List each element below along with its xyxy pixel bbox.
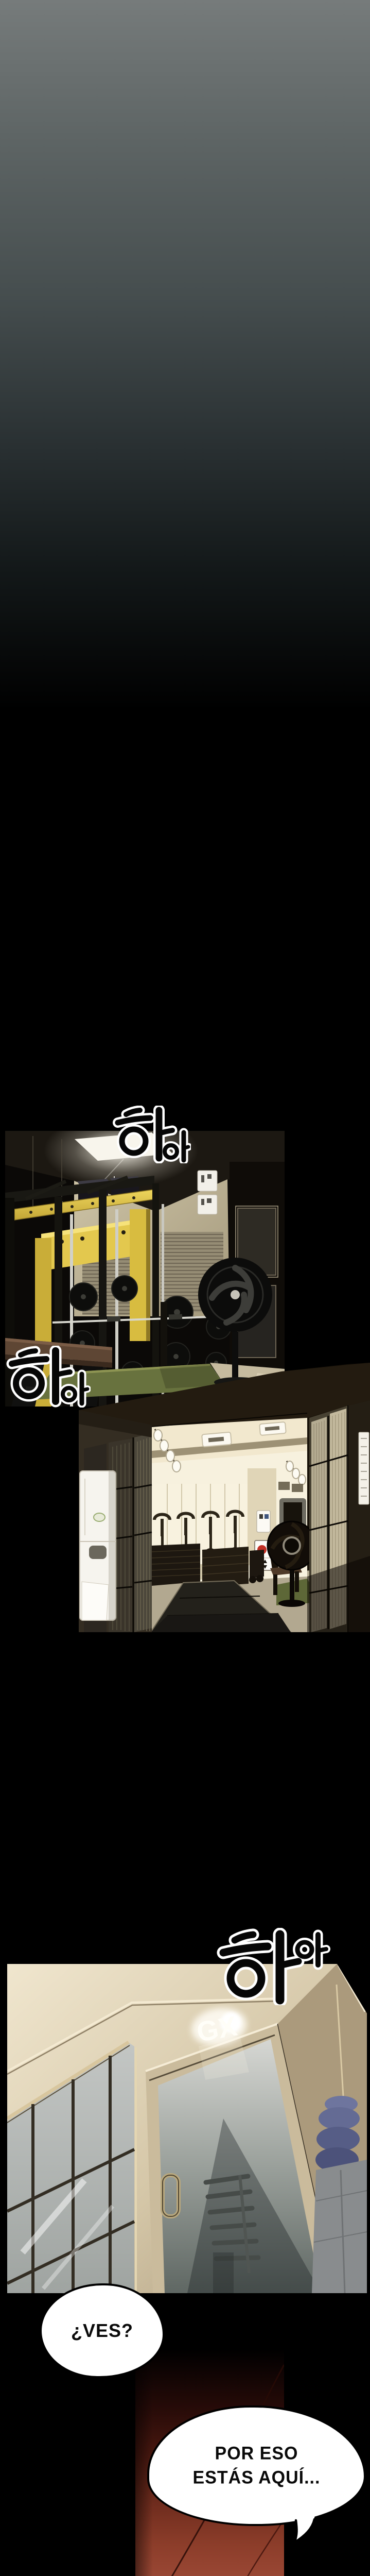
gym-room-illustration <box>5 1131 285 1406</box>
door-illustration: GX <box>7 1964 367 2293</box>
right-lockers <box>307 1400 370 1632</box>
plate-stacks <box>152 1544 264 1587</box>
switch-box <box>257 1511 270 1532</box>
ambient-top-gradient <box>0 0 370 711</box>
speech-line-2: ESTÁS AQUÍ... <box>193 2466 321 2490</box>
speech-bubble-por-eso: POR ESO ESTÁS AQUÍ... <box>147 2405 366 2526</box>
panel-gym-weights-room <box>5 1131 285 1406</box>
speech-line-1: POR ESO <box>193 2442 321 2466</box>
speech-bubble-ves: ¿VES? <box>40 2283 165 2378</box>
speech-text: ¿VES? <box>71 2320 133 2342</box>
sanitizer-dispenser <box>80 1471 116 1620</box>
locker-sticker <box>359 1432 369 1504</box>
speech-bubble-tail <box>291 2513 324 2545</box>
webtoon-page: GX <box>0 0 370 2576</box>
panel-gx-door: GX <box>7 1964 367 2293</box>
